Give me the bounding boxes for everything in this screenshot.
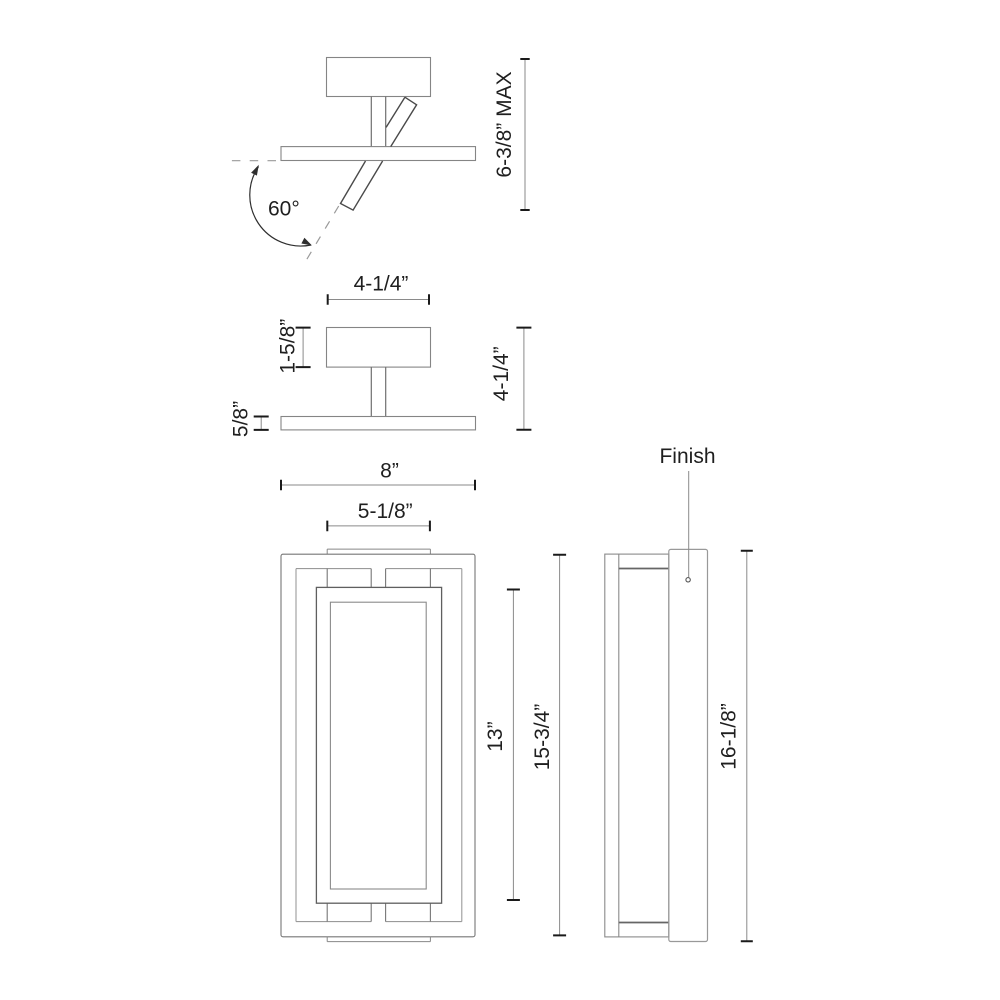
svg-text:4-1/4”: 4-1/4”	[354, 273, 409, 296]
svg-text:4-1/4”: 4-1/4”	[490, 346, 513, 401]
svg-text:5-1/8”: 5-1/8”	[358, 500, 413, 523]
svg-text:6-3/8” MAX: 6-3/8” MAX	[493, 71, 516, 177]
svg-text:60°: 60°	[268, 197, 300, 220]
svg-text:8”: 8”	[380, 460, 399, 483]
svg-text:5/8”: 5/8”	[230, 401, 253, 437]
svg-text:1-5/8”: 1-5/8”	[277, 319, 300, 374]
svg-text:15-3/4”: 15-3/4”	[531, 704, 554, 771]
svg-text:16-1/8”: 16-1/8”	[717, 703, 740, 770]
svg-text:13”: 13”	[484, 721, 507, 751]
svg-text:Finish: Finish	[659, 445, 715, 468]
